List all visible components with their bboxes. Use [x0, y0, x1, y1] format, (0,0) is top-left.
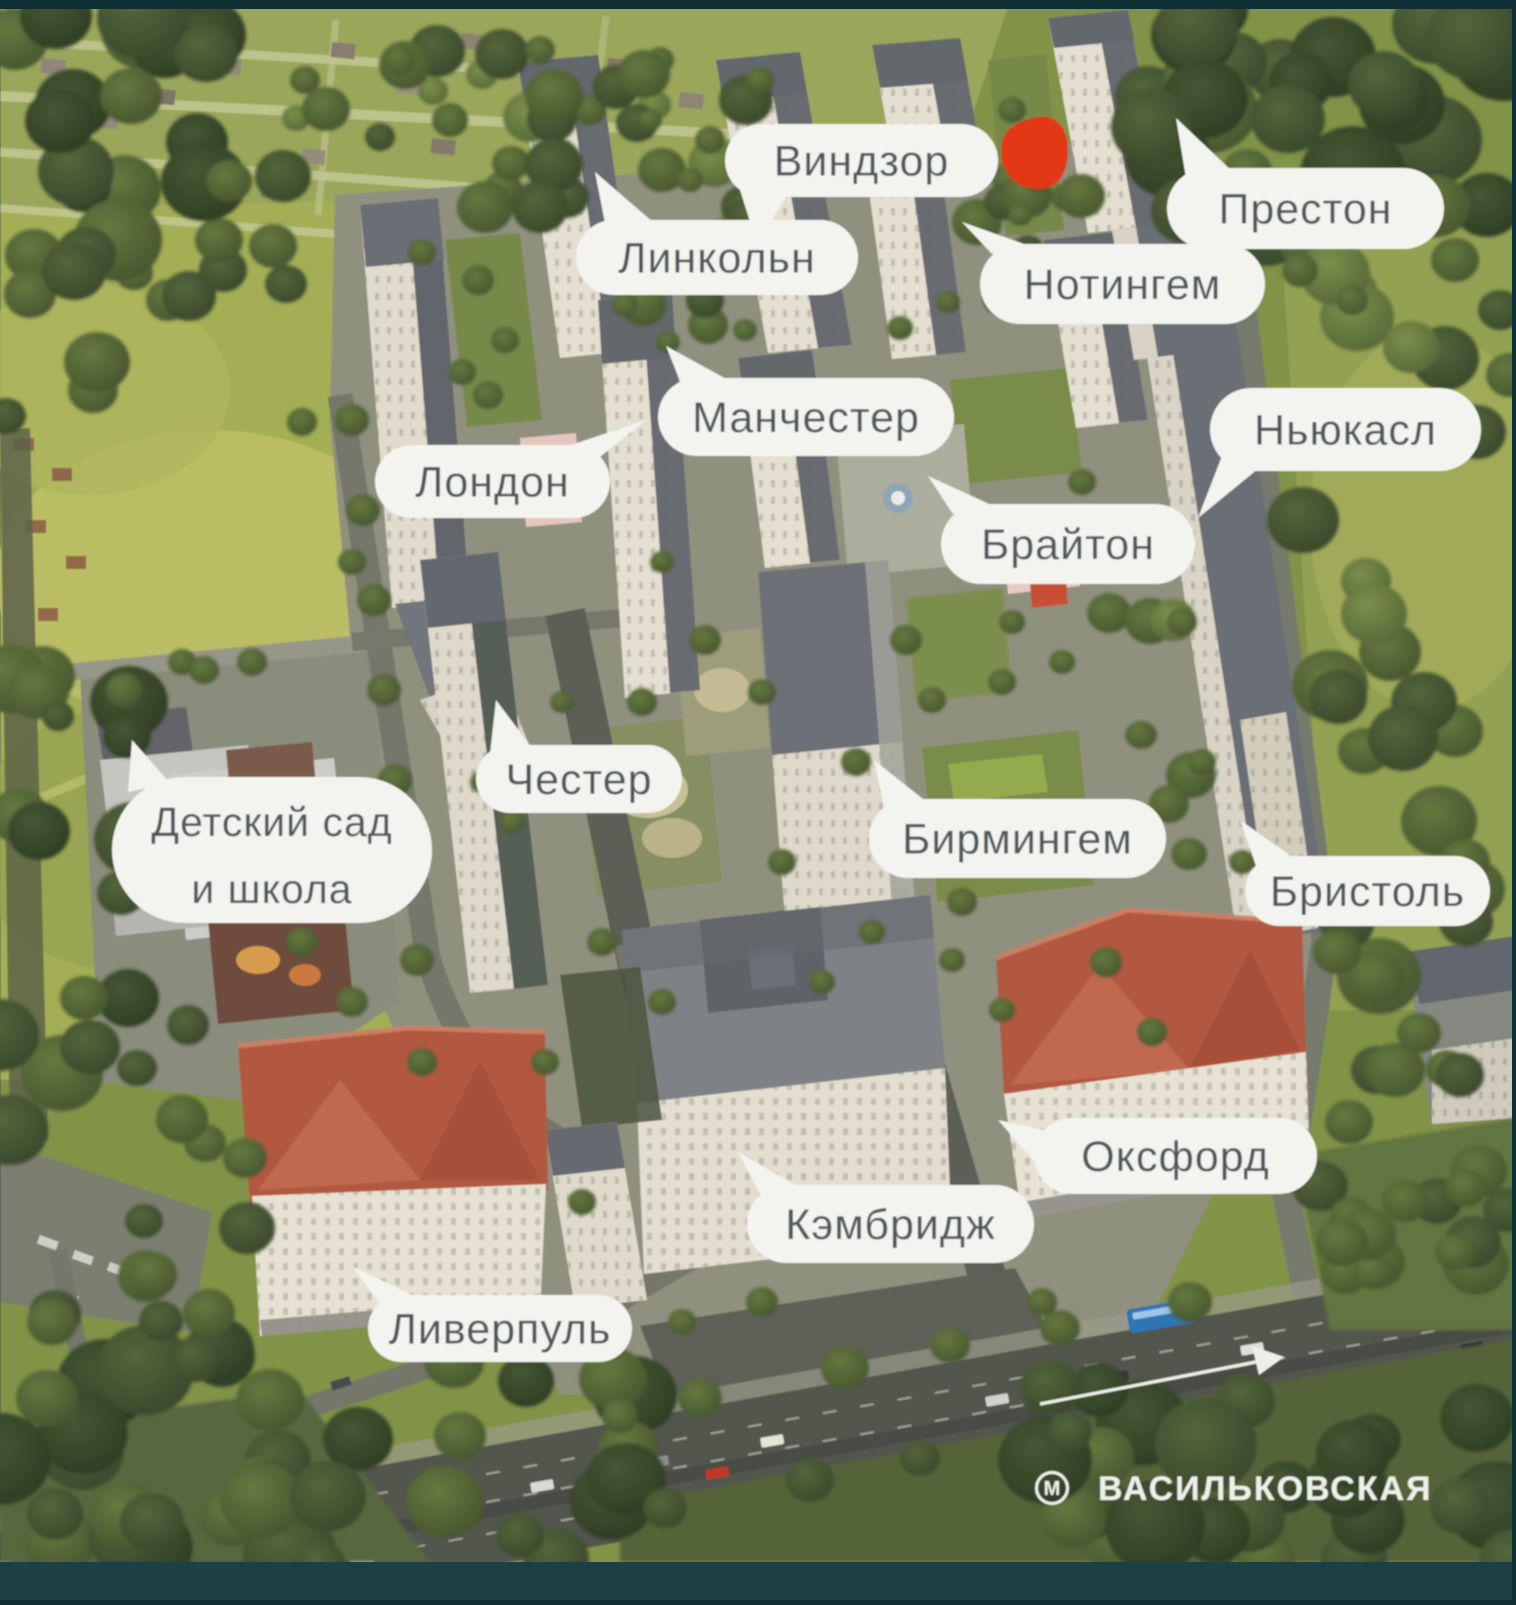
svg-text:и школа: и школа [191, 866, 352, 912]
svg-text:Бристоль: Бристоль [1270, 868, 1465, 916]
svg-text:Бирмингем: Бирмингем [902, 816, 1133, 864]
svg-text:Детский сад: Детский сад [151, 799, 392, 845]
svg-text:Оксфорд: Оксфорд [1081, 1133, 1270, 1181]
svg-text:Ньюкасл: Ньюкасл [1254, 407, 1437, 455]
svg-text:Брайтон: Брайтон [981, 521, 1155, 569]
svg-text:Престон: Престон [1218, 186, 1392, 234]
svg-text:Нотингем: Нотингем [1024, 261, 1222, 309]
svg-text:Честер: Честер [505, 756, 652, 804]
svg-text:ВАСИЛЬКОВСКАЯ: ВАСИЛЬКОВСКАЯ [1098, 1470, 1433, 1508]
svg-text:Лондон: Лондон [415, 459, 570, 507]
svg-text:Виндзор: Виндзор [774, 138, 950, 186]
svg-text:Линкольн: Линкольн [618, 235, 816, 283]
svg-text:Кэмбридж: Кэмбридж [785, 1201, 996, 1249]
svg-text:Ливерпуль: Ливерпуль [389, 1306, 612, 1354]
svg-text:Манчестер: Манчестер [692, 394, 920, 442]
svg-text:M: M [1044, 1478, 1061, 1500]
